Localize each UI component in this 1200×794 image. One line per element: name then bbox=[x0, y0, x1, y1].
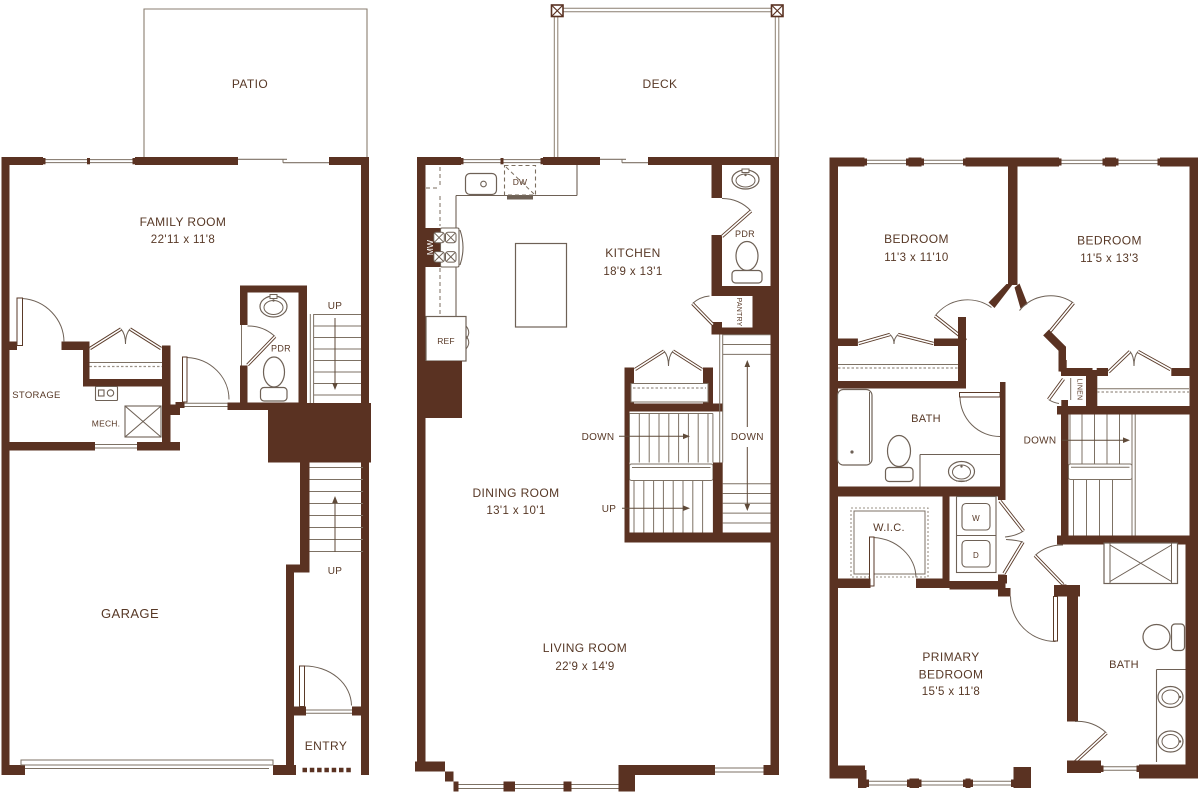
svg-text:LIVING ROOM: LIVING ROOM bbox=[543, 641, 627, 655]
svg-text:DW: DW bbox=[513, 177, 528, 187]
svg-text:22'9 x 14'9: 22'9 x 14'9 bbox=[555, 661, 614, 673]
svg-text:DOWN: DOWN bbox=[731, 432, 764, 443]
svg-text:UP: UP bbox=[328, 301, 343, 312]
svg-text:BATH: BATH bbox=[1109, 659, 1139, 671]
svg-text:LINEN: LINEN bbox=[1075, 379, 1082, 401]
svg-text:13'1 x 10'1: 13'1 x 10'1 bbox=[486, 505, 545, 517]
svg-text:DINING ROOM: DINING ROOM bbox=[472, 486, 559, 500]
svg-text:DECK: DECK bbox=[643, 77, 678, 91]
svg-text:BATH: BATH bbox=[911, 413, 941, 425]
svg-text:BEDROOM: BEDROOM bbox=[884, 232, 949, 246]
svg-text:UP: UP bbox=[328, 566, 343, 577]
svg-text:PANTRY: PANTRY bbox=[735, 298, 742, 327]
svg-text:GARAGE: GARAGE bbox=[101, 606, 159, 621]
svg-text:STORAGE: STORAGE bbox=[12, 390, 60, 401]
svg-text:W: W bbox=[972, 514, 980, 523]
svg-text:FAMILY ROOM: FAMILY ROOM bbox=[140, 215, 227, 229]
svg-text:D: D bbox=[973, 551, 979, 560]
svg-text:PDR: PDR bbox=[271, 344, 291, 354]
svg-text:PATIO: PATIO bbox=[232, 77, 268, 91]
svg-text:11'5 x 13'3: 11'5 x 13'3 bbox=[1080, 253, 1138, 265]
svg-text:DOWN: DOWN bbox=[1024, 436, 1057, 447]
svg-text:DOWN: DOWN bbox=[582, 432, 615, 443]
svg-text:15'5 x 11'8: 15'5 x 11'8 bbox=[922, 686, 980, 698]
svg-text:BEDROOM: BEDROOM bbox=[919, 668, 984, 682]
svg-text:BEDROOM: BEDROOM bbox=[1077, 234, 1142, 248]
svg-text:KITCHEN: KITCHEN bbox=[605, 246, 660, 260]
svg-text:REF: REF bbox=[437, 336, 455, 346]
svg-text:PDR: PDR bbox=[735, 229, 755, 239]
svg-text:PRIMARY: PRIMARY bbox=[922, 650, 979, 664]
svg-text:11'3 x 11'10: 11'3 x 11'10 bbox=[884, 252, 948, 264]
svg-text:UP: UP bbox=[602, 504, 617, 515]
svg-text:18'9 x 13'1: 18'9 x 13'1 bbox=[603, 266, 662, 278]
svg-text:ENTRY: ENTRY bbox=[305, 739, 347, 753]
svg-text:MECH.: MECH. bbox=[92, 419, 120, 429]
svg-text:W.I.C.: W.I.C. bbox=[873, 522, 905, 534]
svg-text:22'11 x 11'8: 22'11 x 11'8 bbox=[151, 234, 215, 246]
